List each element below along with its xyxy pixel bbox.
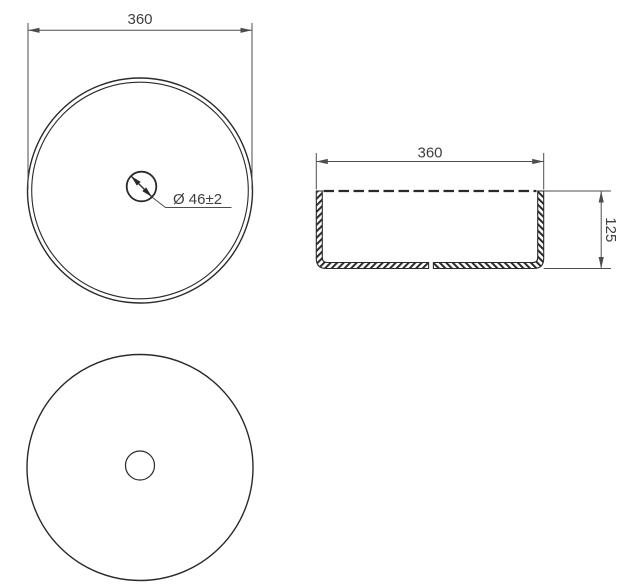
basin-technical-drawing: Ø 46±2 360 360 125 <box>0 0 624 586</box>
side-view-width-dimension-label: 360 <box>417 145 442 162</box>
side-view: 360 125 <box>316 145 619 269</box>
bottom-view-outer-circle <box>27 355 253 581</box>
drain-dimension-label: Ø 46±2 <box>173 191 222 208</box>
bottom-view <box>27 355 253 581</box>
top-view: Ø 46±2 360 <box>28 11 253 303</box>
drain-diameter-arrow-line <box>131 176 152 197</box>
side-view-wall-section-right <box>433 191 543 269</box>
bottom-view-drain-circle <box>126 451 155 480</box>
top-view-diameter-dimension-label: 360 <box>127 11 152 28</box>
side-view-wall-section-left <box>316 191 428 269</box>
drawing-svg: Ø 46±2 360 360 125 <box>0 0 624 586</box>
side-view-height-dimension-label: 125 <box>602 217 619 242</box>
